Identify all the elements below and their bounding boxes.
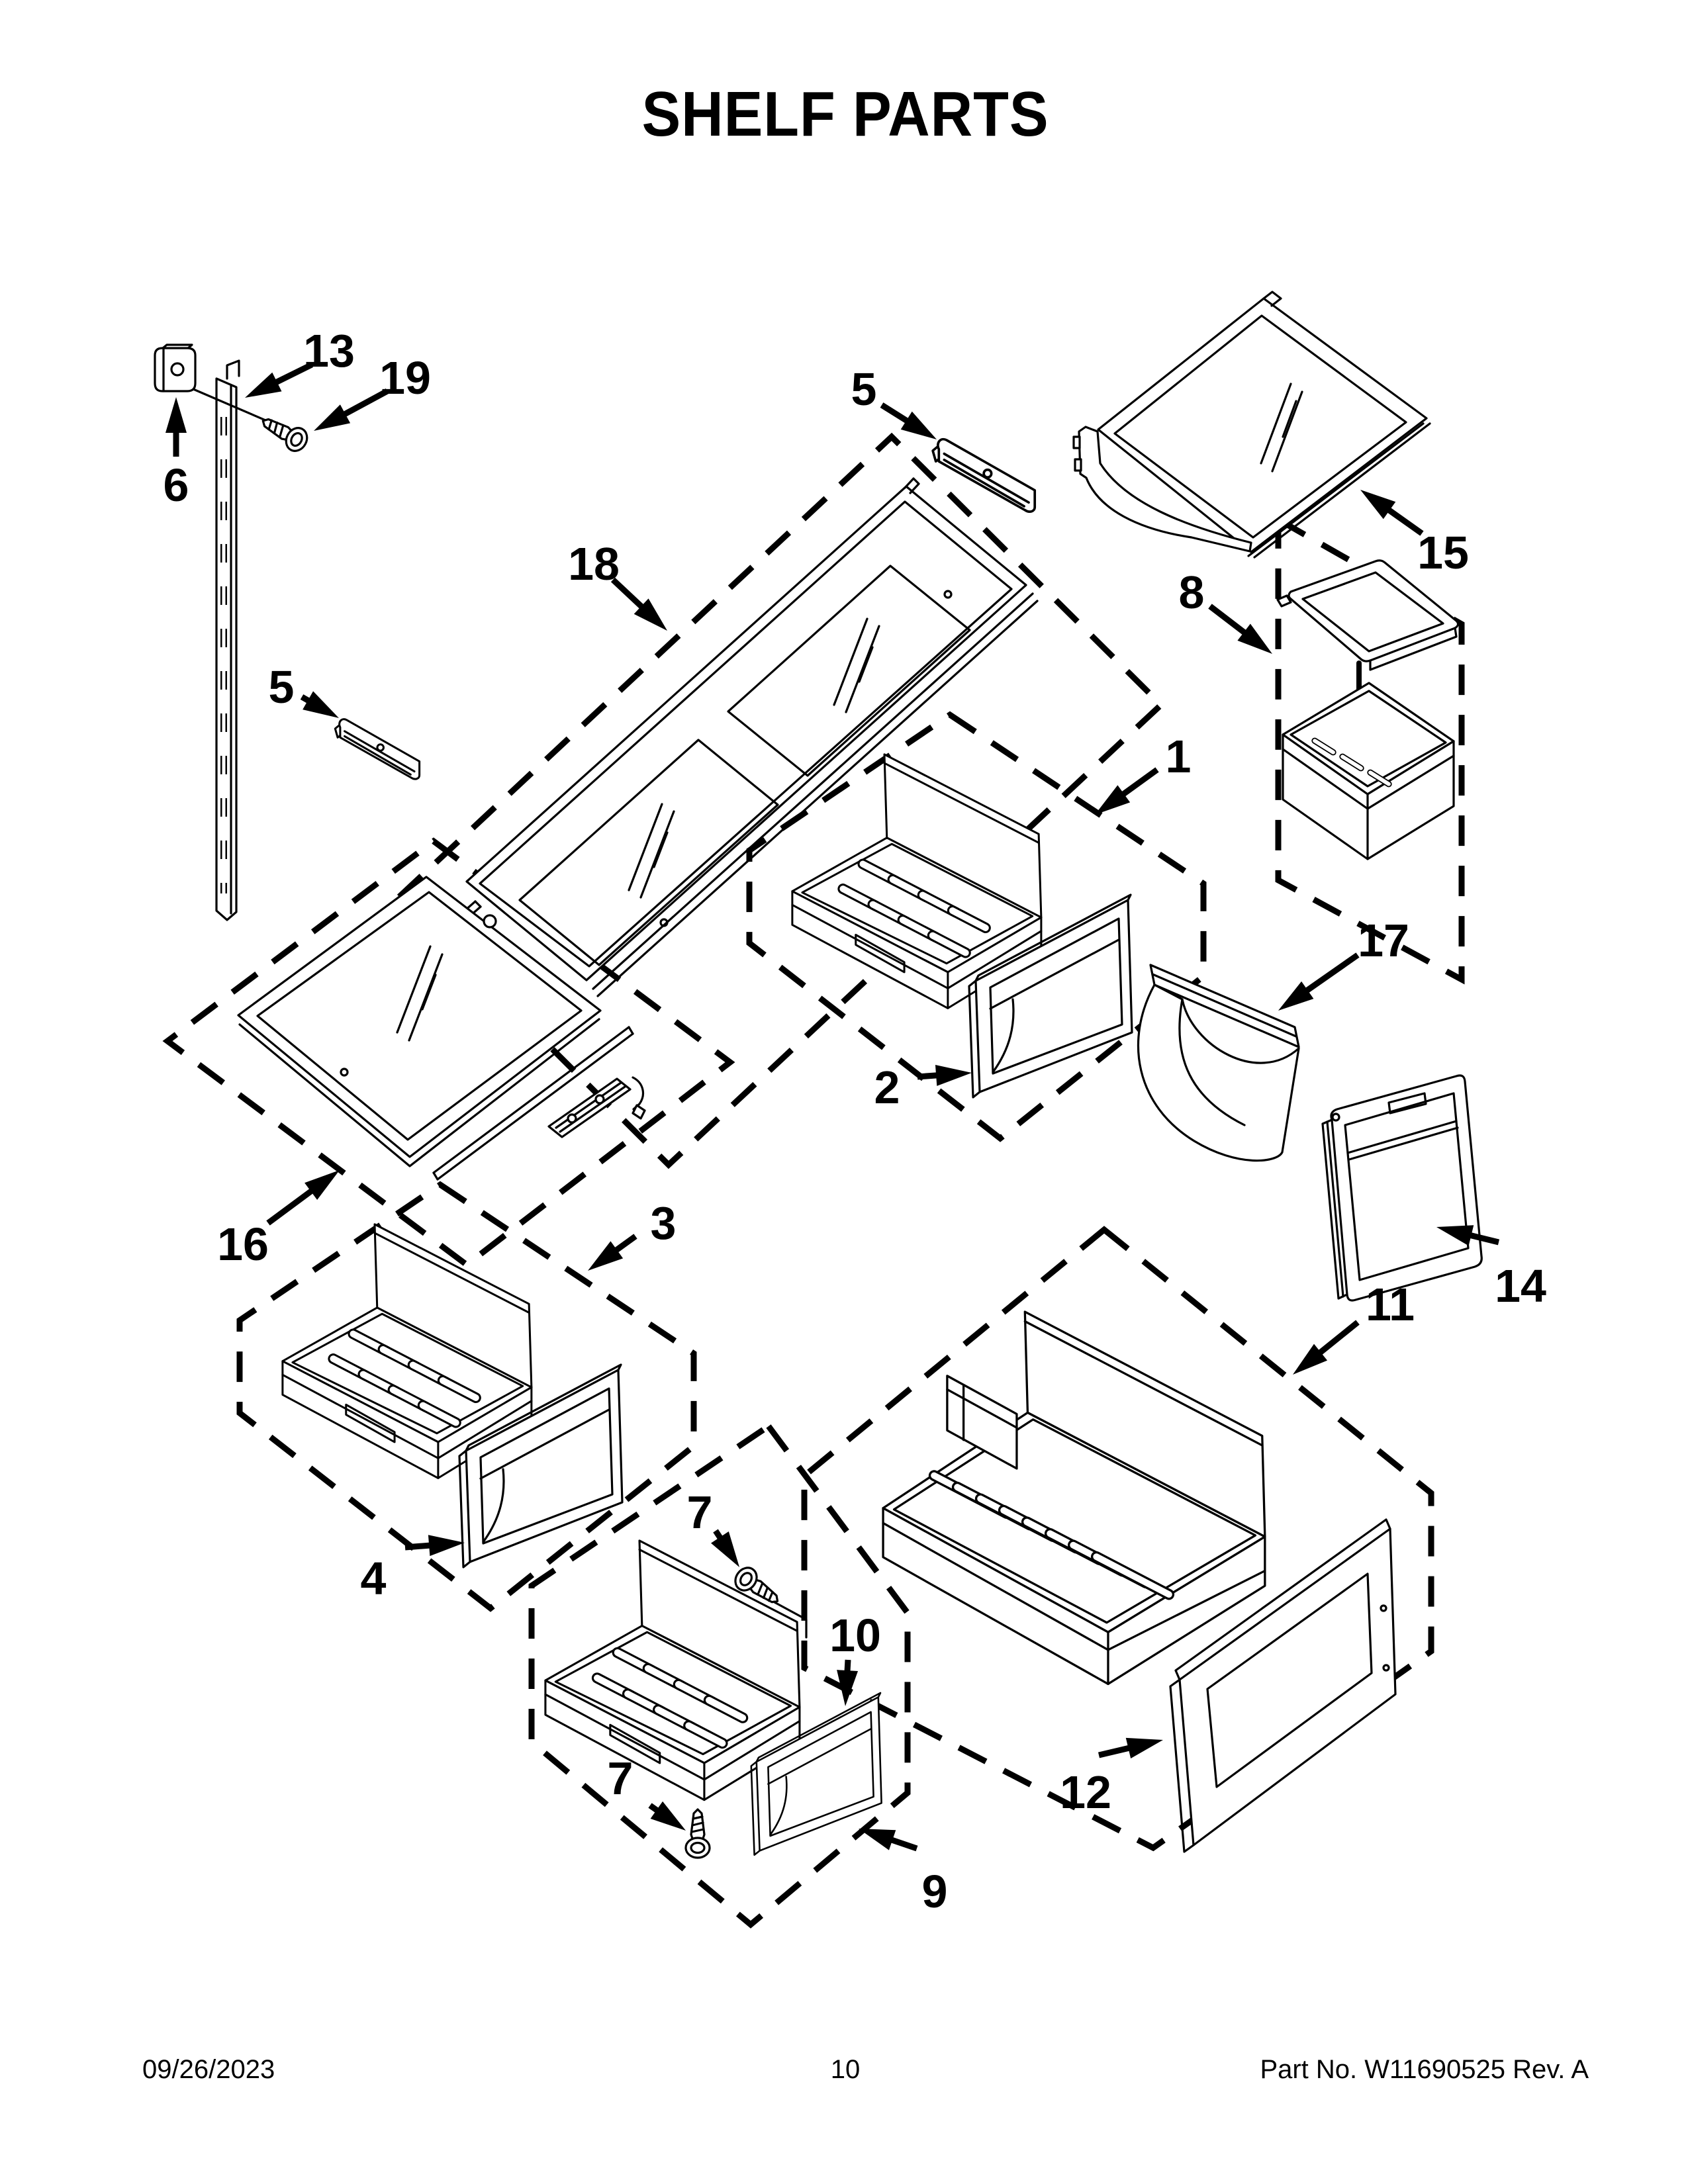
callout-13-0: 13 (245, 325, 355, 398)
shelf-rail-13-drawing (189, 361, 270, 920)
callout-number-7: 7 (608, 1752, 633, 1804)
callout-number-10: 10 (829, 1610, 881, 1661)
callout-17-10: 17 (1278, 915, 1409, 1011)
callout-number-5: 5 (851, 363, 877, 415)
callout-arrowhead (1278, 981, 1313, 1011)
callout-number-19: 19 (379, 352, 431, 404)
curved-cover-17-drawing (1138, 965, 1299, 1161)
rail-end-cap-6-drawing (155, 345, 195, 391)
covered-bin-8-drawing (1278, 561, 1458, 859)
callout-number-4: 4 (361, 1553, 387, 1604)
callout-arrowhead (1126, 1738, 1163, 1758)
shelf-bracket-5-lower-drawing (335, 719, 419, 779)
callout-arrow-line (614, 1236, 635, 1252)
callout-5-3: 5 (851, 363, 937, 439)
callout-number-7: 7 (687, 1486, 713, 1538)
callout-arrow-line (1317, 1322, 1358, 1355)
callout-arrow-line (1304, 955, 1358, 992)
callout-18-4: 18 (568, 538, 667, 631)
callout-number-2: 2 (874, 1062, 900, 1113)
callout-number-17: 17 (1358, 915, 1409, 966)
callout-arrowhead (303, 691, 339, 718)
callout-number-13: 13 (303, 325, 355, 377)
callout-number-14: 14 (1495, 1260, 1546, 1312)
callout-arrowhead (711, 1531, 739, 1567)
callout-4-14: 4 (361, 1535, 465, 1604)
callout-arrowhead (245, 373, 281, 398)
divider-panel-14-drawing (1323, 1075, 1481, 1300)
callout-arrow-line (1121, 770, 1157, 796)
callout-arrow-line (1099, 1747, 1132, 1755)
callout-5-7: 5 (269, 661, 339, 718)
callout-number-6: 6 (164, 459, 189, 511)
callout-number-9: 9 (922, 1866, 948, 1917)
footer-part-number: Part No. W11690525 Rev. A (1260, 2055, 1589, 2084)
callout-number-3: 3 (651, 1197, 677, 1249)
callout-arrow-line (882, 405, 910, 423)
callout-number-1: 1 (1166, 731, 1192, 782)
callout-12-16: 12 (1060, 1738, 1163, 1818)
callout-arrowhead (935, 1065, 972, 1086)
callout-number-18: 18 (568, 538, 620, 590)
glass-shelf-15-drawing (1074, 292, 1430, 557)
callout-arrowhead (314, 404, 350, 431)
callout-10-18: 10 (829, 1610, 881, 1706)
page-title: SHELF PARTS (642, 79, 1049, 150)
shelf-parts-diagram: 1319651815851217141634111271079 SHELF PA… (0, 0, 1688, 2184)
callout-7-17: 7 (687, 1486, 739, 1567)
callout-16-12: 16 (217, 1170, 340, 1270)
callout-arrow-line (888, 1839, 917, 1848)
callout-arrowhead (651, 1801, 686, 1831)
footer-date: 09/26/2023 (142, 2055, 275, 2084)
callout-number-16: 16 (217, 1218, 269, 1270)
callout-8-6: 8 (1179, 567, 1272, 654)
callout-arrow-line (268, 1189, 314, 1223)
callout-3-13: 3 (588, 1197, 676, 1271)
manual-page: 1319651815851217141634111271079 SHELF PA… (0, 0, 1688, 2184)
callout-arrowhead (859, 1829, 896, 1850)
shelf-bracket-5-upper-drawing (933, 439, 1035, 512)
callout-6-2: 6 (164, 397, 189, 511)
callout-arrow-line (1210, 606, 1247, 635)
callout-arrow-line (1386, 508, 1422, 533)
part-drawings (155, 292, 1481, 1858)
callout-number-12: 12 (1060, 1766, 1111, 1818)
screw-19-drawing (258, 410, 311, 455)
callout-number-15: 15 (1417, 527, 1469, 578)
screw-7-lower-drawing (686, 1809, 710, 1858)
callout-arrowhead (165, 397, 187, 433)
footer-page-number: 10 (831, 2055, 861, 2084)
callout-arrowhead (901, 412, 937, 439)
callout-arrow-line (405, 1545, 433, 1547)
callout-number-8: 8 (1179, 567, 1205, 618)
callout-arrowhead (428, 1535, 465, 1556)
callout-9-20: 9 (859, 1829, 947, 1917)
callout-1-8: 1 (1095, 731, 1191, 815)
callout-number-5: 5 (269, 661, 295, 713)
callout-number-11: 11 (1366, 1279, 1415, 1330)
